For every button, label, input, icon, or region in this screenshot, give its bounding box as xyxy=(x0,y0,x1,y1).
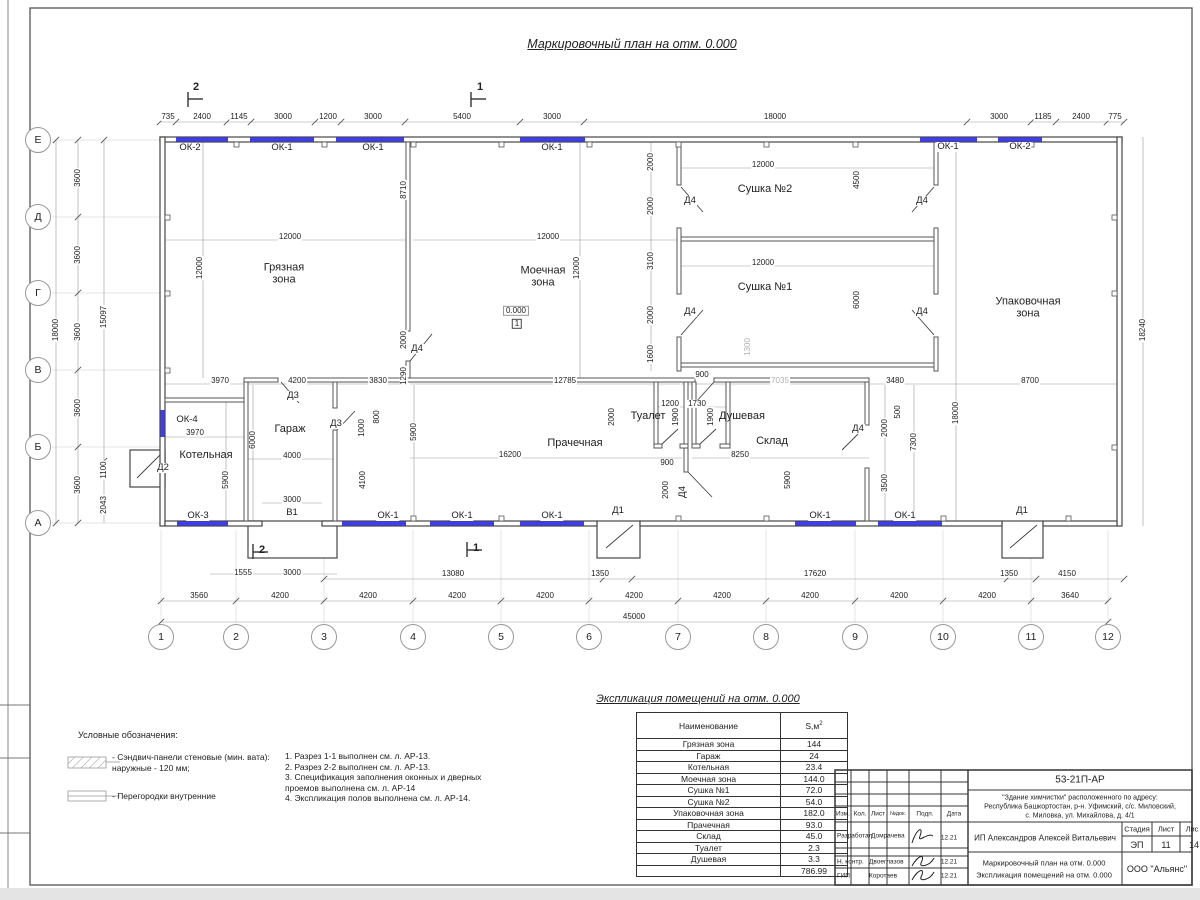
dimension-label: 3600 xyxy=(74,322,82,342)
windows-layer xyxy=(161,138,1043,526)
room-name-cell: Моечная зона xyxy=(637,773,781,785)
plan-title: Маркировочный план на отм. 0.000 xyxy=(527,37,736,51)
room-name-cell: Склад xyxy=(637,831,781,843)
room-name-cell: Душевая xyxy=(637,854,781,866)
address-line-2: Республика Башкортостан, р-н. Уфимский, … xyxy=(984,804,1176,811)
dimension-label: 4200 xyxy=(889,592,909,600)
window-ok4 xyxy=(161,410,165,437)
address-line-3: с. Миловка, ул. Михайлова, д. 4/1 xyxy=(1025,813,1134,820)
col-kol: Кол. xyxy=(854,811,867,818)
section-mark: 2 xyxy=(192,82,200,94)
dimension-label: 13080 xyxy=(441,570,465,578)
dimension-label: 3600 xyxy=(74,168,82,188)
dimension-label: 5900 xyxy=(222,470,230,490)
dimension-label: 4200 xyxy=(270,592,290,600)
window-ok2 xyxy=(176,138,228,142)
grid-axis-column: 11 xyxy=(1018,624,1044,650)
role-nkontr: Н. контр. xyxy=(837,859,864,866)
date-3: 12.21 xyxy=(941,873,957,880)
dimension-label: 4200 xyxy=(800,592,820,600)
dimension-label: 5900 xyxy=(410,422,418,442)
dimension-label: 6000 xyxy=(249,430,257,450)
drawing-sheet: Маркировочный план на отм. 0.000 Эксплик… xyxy=(0,0,1200,900)
dimension-label: 1350 xyxy=(999,570,1019,578)
explication-row: Упаковочная зона182.0 xyxy=(637,808,848,820)
grid-axis-column: 3 xyxy=(311,624,337,650)
dimension-label: 3000 xyxy=(282,569,302,577)
room-label: Прачечная xyxy=(546,438,603,450)
col-podp: Подп. xyxy=(916,811,933,818)
signatures xyxy=(912,830,934,880)
dimension-label: 3500 xyxy=(881,473,889,493)
door-tag: Д4 xyxy=(915,196,929,206)
window-tag: ОК-1 xyxy=(361,143,384,153)
window-ok1 xyxy=(878,522,942,526)
dimension-label: 1730 xyxy=(687,400,707,408)
dimension-label: 3000 xyxy=(363,113,383,121)
legend-item-partition: - Перегородки внутренние xyxy=(112,791,216,802)
room-label: Склад xyxy=(755,436,789,448)
dimension-label: 12000 xyxy=(751,259,775,267)
dimension-label: 2000 xyxy=(662,480,670,500)
room-label: Туалет xyxy=(630,411,667,423)
dimension-label: 1555 xyxy=(233,569,253,577)
dimension-label: 3600 xyxy=(74,398,82,418)
dimension-label: 900 xyxy=(694,371,709,379)
dimension-label: 3100 xyxy=(647,251,655,271)
exterior-walls xyxy=(160,137,1122,526)
dimension-label: 3600 xyxy=(74,245,82,265)
window-tag: ОК-1 xyxy=(450,511,473,521)
vestibule-2 xyxy=(1002,521,1043,558)
room-name-cell: Сушка №2 xyxy=(637,796,781,808)
door-tag: Д1 xyxy=(611,506,625,516)
interior-walls xyxy=(165,142,938,521)
reference-dimension-label: 1300 xyxy=(744,337,752,357)
dimension-label: 1600 xyxy=(647,344,655,364)
grid-axis-row: Б xyxy=(25,434,51,460)
project-code: 53-21П-АР xyxy=(1055,775,1104,786)
window-tag: ОК-1 xyxy=(936,142,959,152)
grid-axis-column: 4 xyxy=(400,624,426,650)
dimension-label: 15097 xyxy=(100,305,108,329)
dimension-label: 18000 xyxy=(952,401,960,425)
door-tag: Д3 xyxy=(329,419,343,429)
col-list: Лист xyxy=(871,811,885,818)
room-name-cell: Котельная xyxy=(637,762,781,774)
window-ok1 xyxy=(520,522,584,526)
dimension-label: 500 xyxy=(894,404,902,419)
grid-axis-column: 7 xyxy=(665,624,691,650)
dimension-label: 1000 xyxy=(358,418,366,438)
door-tag: Д4 xyxy=(851,424,865,434)
stage-value: ЭП xyxy=(1131,840,1144,850)
dimension-label: 12785 xyxy=(553,377,577,385)
explication-row: Туалет2.3 xyxy=(637,842,848,854)
window-tag: ОК-1 xyxy=(270,143,293,153)
door-tag: Д3 xyxy=(286,391,300,401)
dimension-label: 2000 xyxy=(400,330,408,350)
name-dvoeglazov: Двоеглазов xyxy=(869,859,904,866)
signature-1 xyxy=(912,830,933,843)
room-label: Сушка №1 xyxy=(737,282,793,294)
window-tag: ОК-2 xyxy=(178,143,201,153)
dimension-label: 1350 xyxy=(590,570,610,578)
dimension-label: 3830 xyxy=(368,377,388,385)
grid-axis-column: 6 xyxy=(576,624,602,650)
explication-row: 786.99 xyxy=(637,865,848,877)
room-area-cell: 144 xyxy=(781,739,848,751)
grid-axis-row: Г xyxy=(25,280,51,306)
dimension-ticks xyxy=(53,119,1127,625)
window-tag: ОК-1 xyxy=(540,511,563,521)
legend-title: Условные обозначения: xyxy=(78,730,178,740)
explication-table: Наименование S,м2 Грязная зона144Гараж24… xyxy=(636,712,848,877)
col-header-area: S,м2 xyxy=(781,713,848,739)
window-ok1 xyxy=(520,138,585,142)
door-tag: Д4 xyxy=(915,307,929,317)
explication-title: Экспликация помещений на отм. 0.000 xyxy=(596,693,799,705)
grid-axis-row: Д xyxy=(25,204,51,230)
client-name: ИП Александров Алексей Витальевич xyxy=(974,834,1116,843)
dimension-label: 17620 xyxy=(803,570,827,578)
dimension-label: 5400 xyxy=(452,113,472,121)
sheets-value: 14 xyxy=(1189,840,1199,850)
room-area-cell: 23.4 xyxy=(781,762,848,774)
window-ok1 xyxy=(430,522,494,526)
window-tag: ОК-1 xyxy=(893,511,916,521)
dimension-label: 3480 xyxy=(885,377,905,385)
dimension-label: 1900 xyxy=(707,407,715,427)
col-ndok: №док. xyxy=(890,811,906,817)
grid-axis-column: 5 xyxy=(488,624,514,650)
explication-row: Сушка №254.0 xyxy=(637,796,848,808)
section-mark: 1 xyxy=(476,82,484,94)
dimension-label: 2400 xyxy=(1071,113,1091,121)
room-label: Душевая xyxy=(718,411,766,423)
vestibule-1 xyxy=(597,521,640,558)
explication-row: Душевая3.3 xyxy=(637,854,848,866)
sheets-header: Лис xyxy=(1186,825,1199,834)
explication-row: Сушка №172.0 xyxy=(637,785,848,797)
floor-type-mark: 1 xyxy=(512,319,522,329)
window-tag: ОК-2 xyxy=(1008,142,1031,152)
dimension-label: 4200 xyxy=(358,592,378,600)
dimension-label: 4200 xyxy=(287,377,307,385)
organization-name: ООО "Альянс" xyxy=(1127,864,1187,874)
col-data: Дата xyxy=(947,811,961,818)
dimension-label: 8710 xyxy=(400,180,408,200)
dimension-label: 735 xyxy=(160,113,175,121)
window-ok1 xyxy=(250,138,314,142)
explication-row: Моечная зона144.0 xyxy=(637,773,848,785)
dimension-label: 4000 xyxy=(282,452,302,460)
dimension-label: 4200 xyxy=(535,592,555,600)
room-label: Грязная зона xyxy=(263,262,305,285)
window-ok1 xyxy=(795,522,856,526)
dimension-label: 12000 xyxy=(196,256,204,280)
dimension-label: 3000 xyxy=(282,496,302,504)
dimension-label: 2000 xyxy=(647,196,655,216)
grid-axis-column: 9 xyxy=(842,624,868,650)
dimension-label: 3000 xyxy=(542,113,562,121)
dimension-label: 6000 xyxy=(853,290,861,310)
dimension-label: 4100 xyxy=(359,470,367,490)
door-tag: Д4 xyxy=(683,196,697,206)
role-gip: ГИП xyxy=(837,873,850,880)
window-ok1 xyxy=(336,138,404,142)
dimension-label: 4500 xyxy=(853,170,861,190)
window-tag: ОК-1 xyxy=(808,511,831,521)
dimension-label: 12000 xyxy=(536,233,560,241)
dimension-label: 3970 xyxy=(210,377,230,385)
window-ok1 xyxy=(342,522,406,526)
dimension-label: 5900 xyxy=(784,470,792,490)
dimension-label: 1145 xyxy=(229,113,248,121)
room-name-cell: Упаковочная зона xyxy=(637,808,781,820)
dimension-label: 8250 xyxy=(730,451,750,459)
dimension-label: 18000 xyxy=(52,318,60,342)
dimension-label: 775 xyxy=(1107,113,1122,121)
room-area-cell: 54.0 xyxy=(781,796,848,808)
doc-title-line-1: Маркировочный план на отм. 0.000 xyxy=(983,859,1106,868)
dimension-label: 2000 xyxy=(647,152,655,172)
drawing-notes: 1. Разрез 1-1 выполнен см. л. АР-13. 2. … xyxy=(285,751,481,804)
col-header-name: Наименование xyxy=(637,713,781,739)
room-area-cell: 144.0 xyxy=(781,773,848,785)
dimension-label: 3000 xyxy=(273,113,293,121)
room-label: Моечная зона xyxy=(519,265,566,288)
dimension-label: 3640 xyxy=(1060,592,1080,600)
section-mark: 1 xyxy=(472,543,480,555)
reference-dimension-label: 7035 xyxy=(770,377,790,385)
dimension-label: 2000 xyxy=(647,305,655,325)
dimension-label: 16200 xyxy=(498,451,522,459)
explication-row: Грязная зона144 xyxy=(637,739,848,751)
dimension-label: 18000 xyxy=(763,113,787,121)
section-mark: 2 xyxy=(258,545,266,557)
grid-axis-column: 8 xyxy=(753,624,779,650)
dimension-label: 3560 xyxy=(189,592,209,600)
grid-axis-row: В xyxy=(25,357,51,383)
room-name-cell xyxy=(637,865,781,877)
role-razrabotal: Разработал xyxy=(837,833,872,840)
dimension-label: 3970 xyxy=(185,429,205,437)
dimension-label: 18240 xyxy=(1139,318,1147,342)
window-ok3 xyxy=(177,522,228,526)
room-area-cell: 24 xyxy=(781,750,848,762)
dimension-label: 800 xyxy=(373,409,381,424)
grid-axis-column: 1 xyxy=(148,624,174,650)
window-tag: ОК-1 xyxy=(376,511,399,521)
room-name-cell: Гараж xyxy=(637,750,781,762)
name-korotaev: Коротаев xyxy=(869,873,897,880)
dimension-label: 4150 xyxy=(1057,570,1077,578)
dimension-label: 4200 xyxy=(977,592,997,600)
window-tag: ОК-4 xyxy=(175,415,198,425)
dimension-label: 2000 xyxy=(608,407,616,427)
door-tag: Д4 xyxy=(678,485,688,499)
dimension-label: 12000 xyxy=(573,256,581,280)
dimension-label: 12000 xyxy=(751,161,775,169)
name-domracheva: Домрачева xyxy=(871,833,905,840)
dimension-label: 4200 xyxy=(624,592,644,600)
room-area-cell: 93.0 xyxy=(781,819,848,831)
date-2: 12.21 xyxy=(941,859,957,866)
signature-3 xyxy=(912,871,934,880)
dimension-label: 900 xyxy=(659,459,674,467)
room-name-cell: Туалет xyxy=(637,842,781,854)
dimension-label: 2043 xyxy=(100,495,108,515)
stage-header: Стадия xyxy=(1124,825,1150,834)
room-area-cell: 72.0 xyxy=(781,785,848,797)
explication-row: Гараж24 xyxy=(637,750,848,762)
room-name-cell: Прачечная xyxy=(637,819,781,831)
room-label: Котельная xyxy=(178,450,233,462)
address-line-1: "Здание химчистки" расположенного по адр… xyxy=(1002,795,1158,802)
explication-row: Склад45.0 xyxy=(637,831,848,843)
door-tag: Д4 xyxy=(683,307,697,317)
room-name-cell: Грязная зона xyxy=(637,739,781,751)
signature-2 xyxy=(912,857,934,866)
sandwich-panel-swatch xyxy=(68,757,106,768)
dimension-label: 12000 xyxy=(278,233,302,241)
dimension-label: 3000 xyxy=(989,113,1009,121)
window-tag: ОК-1 xyxy=(540,143,563,153)
sheet-header: Лист xyxy=(1158,825,1174,834)
dimension-label: 3600 xyxy=(74,475,82,495)
room-name-cell: Сушка №1 xyxy=(637,785,781,797)
dimension-label: 1200 xyxy=(318,113,338,121)
sheet-value: 11 xyxy=(1161,840,1170,850)
door-tag: Д2 xyxy=(156,463,170,473)
room-label: Сушка №2 xyxy=(737,184,793,196)
room-label: Гараж xyxy=(273,424,306,436)
dimension-label: 4200 xyxy=(447,592,467,600)
explication-row: Прачечная93.0 xyxy=(637,819,848,831)
explication-row: Котельная23.4 xyxy=(637,762,848,774)
room-label: Упаковочная зона xyxy=(994,296,1061,319)
dimension-label: 4200 xyxy=(712,592,732,600)
grid-axis-column: 10 xyxy=(930,624,956,650)
dimension-label: 1900 xyxy=(672,407,680,427)
door-tag: Д1 xyxy=(1015,506,1029,516)
pilaster-marks xyxy=(165,142,1117,521)
level-mark: 0.000 xyxy=(503,306,529,316)
doc-title-line-2: Экспликация помещений на отм. 0.000 xyxy=(976,871,1112,880)
entrance-bays xyxy=(130,450,1043,558)
dimension-label: 1290 xyxy=(400,366,408,386)
legend-item-sandwich: - Сэндвич-панели стеновые (мин. вата): н… xyxy=(112,752,270,773)
dimension-label: 2000 xyxy=(881,418,889,438)
dimension-label: 1185 xyxy=(1033,113,1052,121)
grid-axis-row: А xyxy=(25,510,51,536)
grid-axis-column: 12 xyxy=(1095,624,1121,650)
date-1: 12.21 xyxy=(941,835,957,842)
window-tag: ОК-3 xyxy=(186,511,209,521)
dimension-label: 8700 xyxy=(1020,377,1040,385)
room-area-cell: 2.3 xyxy=(781,842,848,854)
dimension-label: 1100 xyxy=(100,460,108,479)
col-izm: Изм. xyxy=(836,811,850,818)
grid-axis-row: Е xyxy=(25,127,51,153)
door-tag: Д4 xyxy=(410,344,424,354)
dimension-label: 2400 xyxy=(192,113,212,121)
dimension-label: 45000 xyxy=(622,613,646,621)
door-tag: В1 xyxy=(285,508,299,518)
grid-axis-column: 2 xyxy=(223,624,249,650)
dimension-label: 7300 xyxy=(910,432,918,452)
